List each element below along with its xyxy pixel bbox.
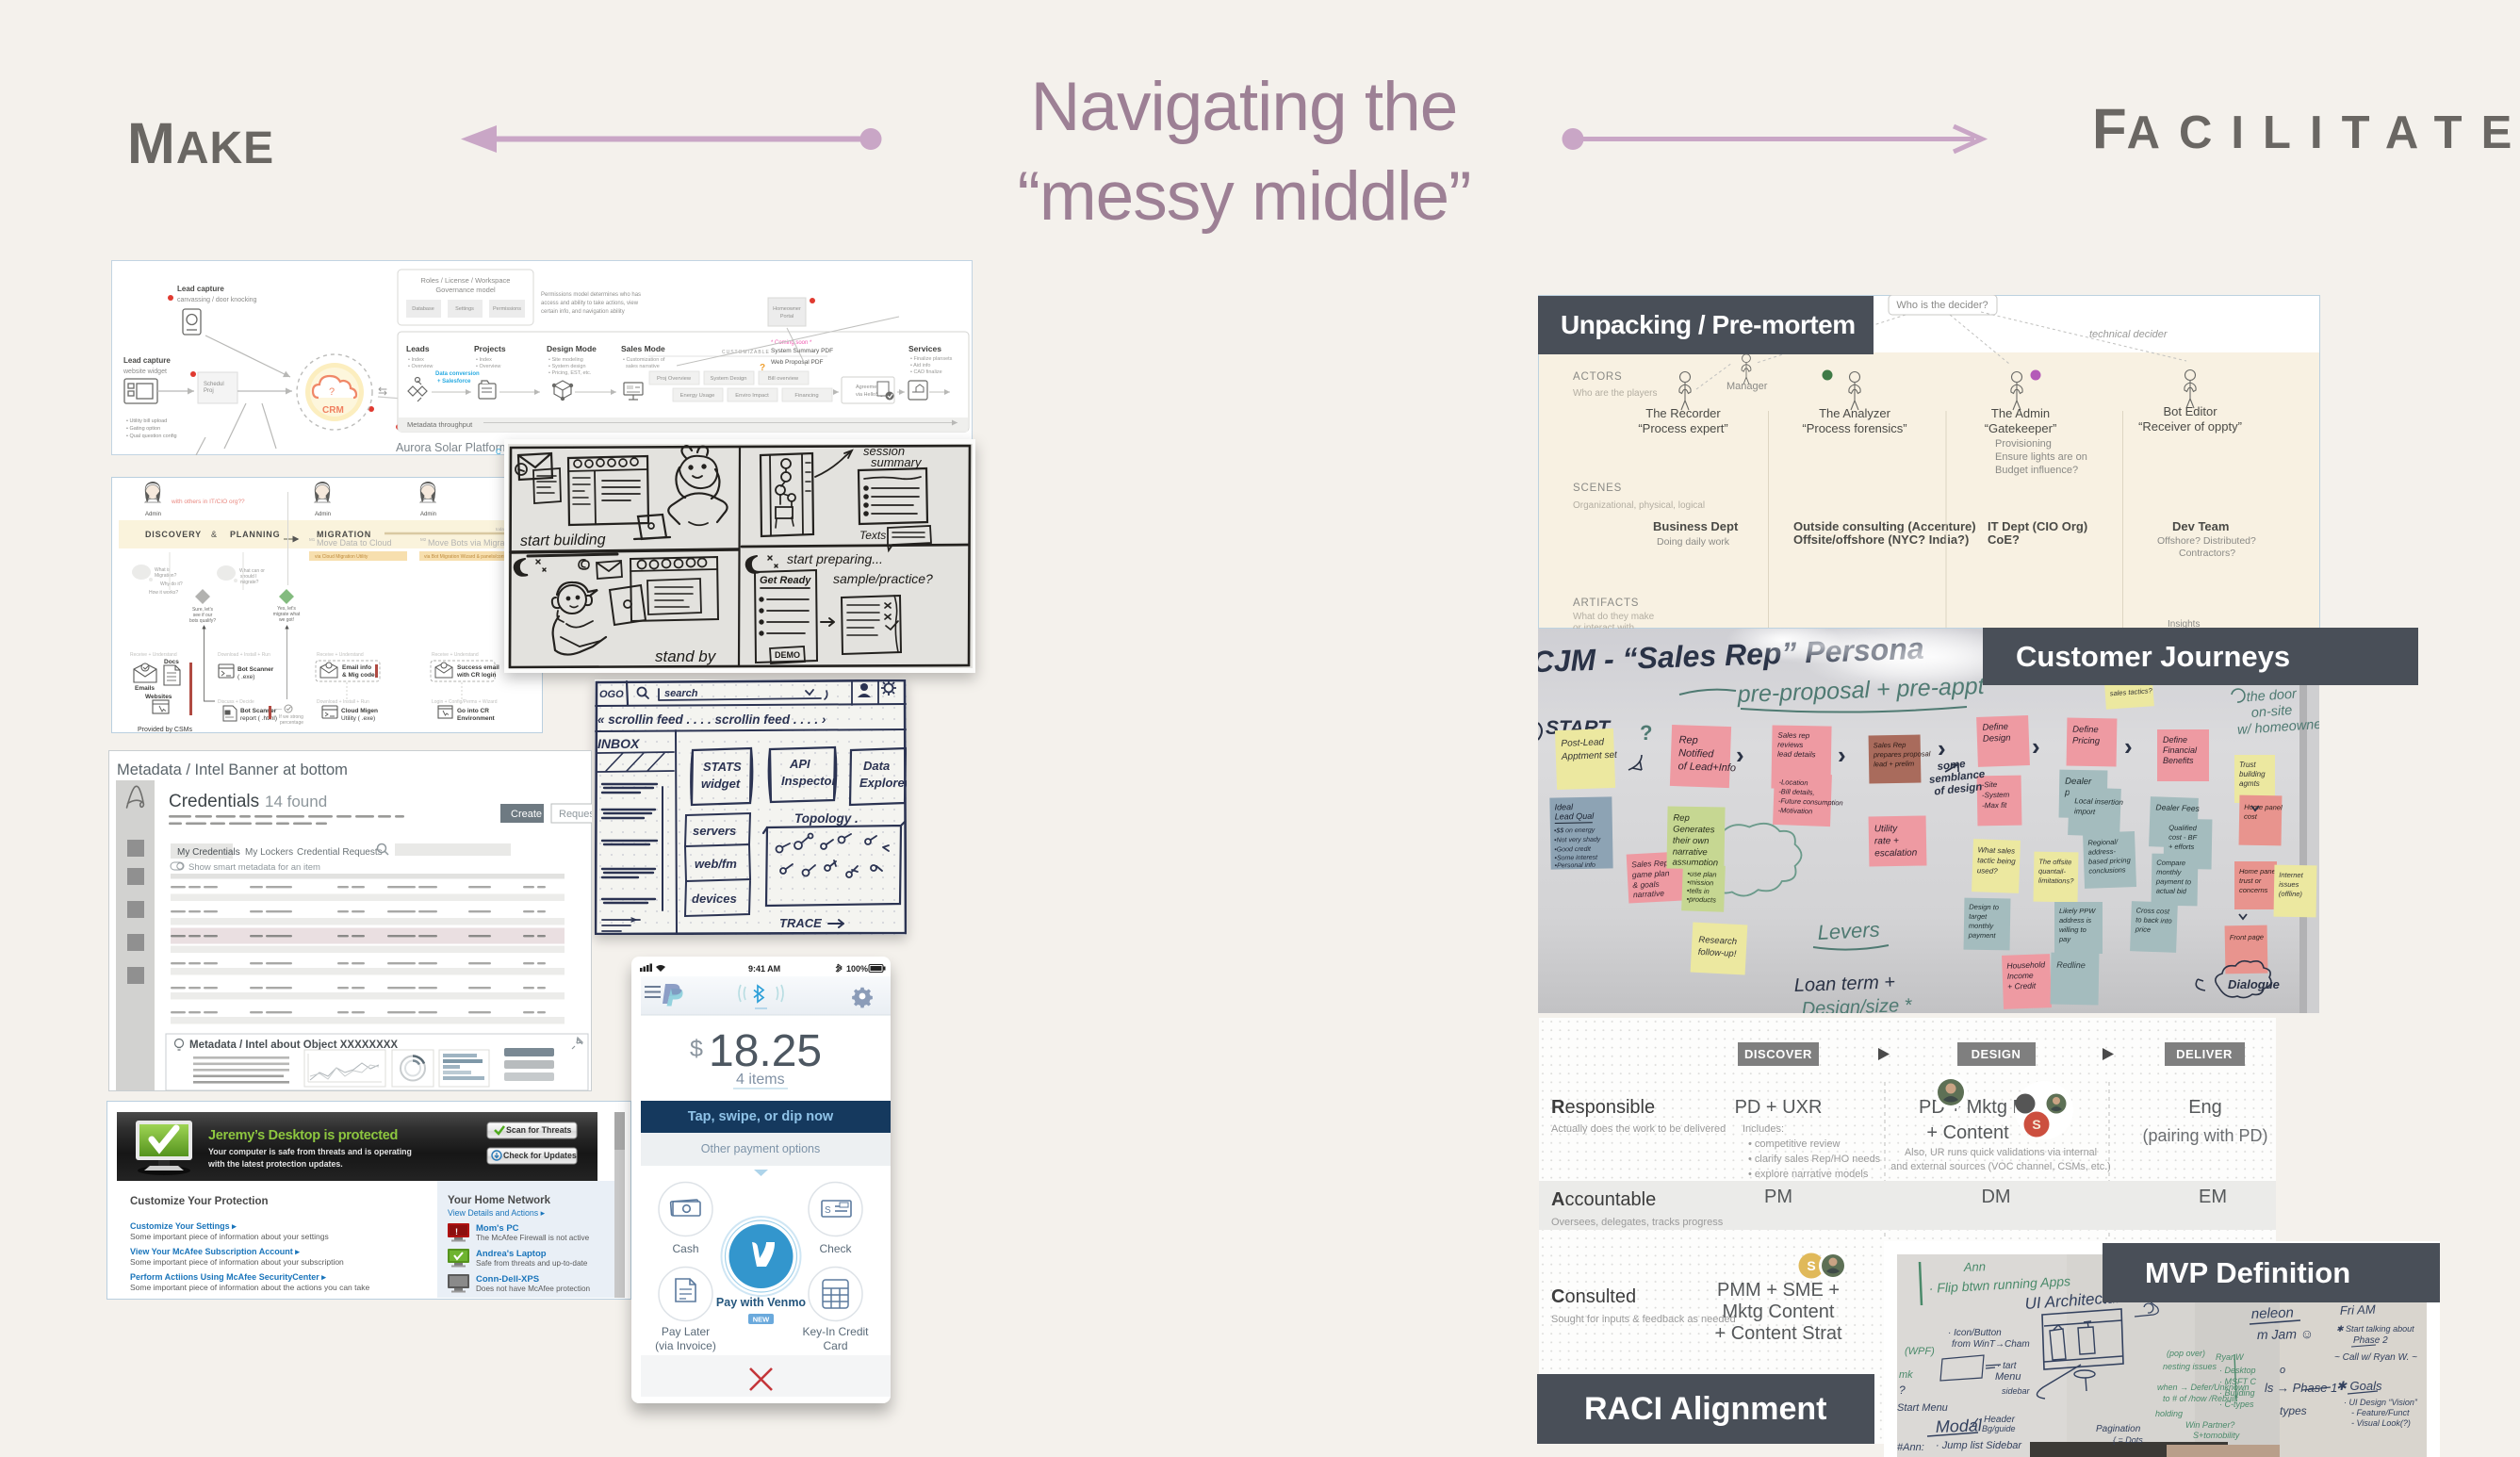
svg-text:sidebar: sidebar (2002, 1386, 2031, 1396)
svg-text:start building: start building (520, 532, 606, 549)
svg-text:stand by: stand by (655, 647, 717, 665)
svg-text:Design/size *: Design/size * (1801, 995, 1913, 1013)
svg-text:Your computer is safe from thr: Your computer is safe from threats and i… (208, 1147, 412, 1156)
svg-text:DEMO: DEMO (775, 650, 800, 660)
svg-text:Home panel: Home panel (2244, 803, 2283, 812)
svg-text:Pay Later: Pay Later (662, 1325, 710, 1338)
svg-text:-Motivation: -Motivation (1777, 806, 1812, 815)
svg-text:willing to: willing to (2059, 925, 2086, 934)
svg-text:C: C (496, 448, 501, 455)
svg-text:•Good credit: •Good credit (1554, 846, 1592, 854)
svg-text:Dev Team: Dev Team (2172, 519, 2229, 533)
svg-text:DM: DM (1981, 1187, 2010, 1207)
svg-text:Proj: Proj (204, 388, 214, 394)
svg-text:conclusions: conclusions (2088, 865, 2126, 875)
svg-text:Energy Usage: Energy Usage (680, 393, 715, 399)
svg-text:18.25: 18.25 (709, 1026, 822, 1076)
svg-text:Emails: Emails (135, 685, 155, 692)
svg-text:• Overview: • Overview (408, 364, 433, 369)
svg-text:S: S (825, 1205, 831, 1216)
svg-text:PD + Mktg D: PD + Mktg D (1919, 1097, 2026, 1118)
svg-text:DISCOVER: DISCOVER (1744, 1047, 1812, 1061)
svg-text:INBOX: INBOX (597, 736, 641, 751)
svg-text:actual bid: actual bid (2156, 887, 2187, 896)
svg-text:tactic being: tactic being (1977, 856, 2016, 865)
svg-text:narrative: narrative (1633, 889, 1665, 900)
svg-text:PMM + SME +: PMM + SME + (1717, 1280, 1840, 1301)
svg-text:Mktg Content: Mktg Content (1723, 1301, 1835, 1322)
svg-text:?: ? (1640, 721, 1652, 745)
svg-text:Receive + Understand: Receive + Understand (317, 652, 364, 658)
svg-text:-Site: -Site (1982, 780, 1998, 789)
svg-text:Inspector: Inspector (781, 774, 837, 788)
svg-text:(pop over): (pop over) (2167, 1349, 2205, 1358)
svg-text:Your Home Network: Your Home Network (448, 1195, 551, 1206)
svg-text:Offsite/offshore (NYC? India?): Offsite/offshore (NYC? India?) (1793, 532, 1969, 547)
svg-text:- Visual Look(?): - Visual Look(?) (2351, 1418, 2411, 1428)
svg-text:• Aid info: • Aid info (910, 363, 931, 368)
svg-text:Metadata throughput: Metadata throughput (407, 420, 473, 429)
svg-text:Post-Lead: Post-Lead (1561, 737, 1604, 749)
svg-text:m Jam ☺: m Jam ☺ (2257, 1326, 2314, 1342)
svg-text:Bot Editor: Bot Editor (2163, 404, 2217, 418)
svg-text:Download + Install + Run: Download + Install + Run (317, 699, 369, 705)
svg-text:Consulted: Consulted (1551, 1286, 1636, 1307)
svg-text:View Details and Actions ▸: View Details and Actions ▸ (448, 1208, 546, 1218)
svg-text:Homeowner: Homeowner (773, 306, 801, 312)
svg-text:+ Credit: + Credit (2007, 981, 2037, 991)
svg-text:• Index: • Index (408, 357, 424, 363)
svg-text:follow-up!: follow-up! (1697, 947, 1737, 959)
svg-text:#Ann:: #Ann: (1897, 1442, 1924, 1453)
svg-text:Docs: Docs (164, 659, 179, 665)
svg-text:with the latest protection upd: with the latest protection updates. (207, 1159, 343, 1169)
svg-text:• Overview: • Overview (476, 364, 500, 369)
svg-text:address-: address- (2088, 847, 2117, 857)
svg-text:Income: Income (2007, 971, 2034, 981)
svg-text:•Not very shady: •Not very shady (1554, 837, 1601, 844)
svg-text:Discuss + Decide: Discuss + Decide (218, 699, 254, 705)
svg-text:Utility: Utility (1874, 824, 1899, 834)
svg-text:« scrollin feed . . . . scrol: « scrollin feed . . . . scrollin feed . … (597, 712, 826, 727)
svg-text:Environment: Environment (457, 715, 496, 722)
svg-text:· Building: · Building (2219, 1388, 2255, 1398)
svg-text:· MSFT C: · MSFT C (2219, 1377, 2256, 1386)
svg-text:Explorer: Explorer (859, 776, 907, 790)
svg-text:address is: address is (2059, 916, 2091, 925)
svg-text:narrative: narrative (1673, 847, 1708, 859)
svg-text:Rep: Rep (1678, 734, 1698, 746)
svg-text:CRM: CRM (322, 405, 344, 416)
svg-text:Pricing: Pricing (2072, 736, 2101, 747)
svg-text:Admin: Admin (420, 512, 436, 517)
svg-text:Actually does the work to be d: Actually does the work to be delivered (1551, 1123, 1726, 1135)
svg-text:Some important piece of inform: Some important piece of information abou… (130, 1232, 329, 1241)
svg-text:STATS: STATS (703, 760, 742, 774)
svg-text:Sales rep: Sales rep (1777, 731, 1809, 741)
svg-text:+ efforts: + efforts (2168, 843, 2195, 851)
svg-text:Create: Create (511, 809, 542, 820)
svg-text:Data conversion: Data conversion (435, 371, 480, 377)
svg-text:Mom's PC: Mom's PC (476, 1223, 519, 1234)
svg-text:Permissions: Permissions (493, 306, 521, 312)
svg-text:Offshore? Distributed?: Offshore? Distributed? (2157, 535, 2256, 547)
svg-text:Research: Research (1698, 935, 1737, 947)
svg-text:bots qualify?: bots qualify? (189, 618, 216, 624)
svg-text:Outside consulting (Accenture): Outside consulting (Accenture) (1793, 519, 1976, 533)
svg-text:Define: Define (2163, 735, 2187, 745)
svg-text:Apptment set: Apptment set (1561, 750, 1618, 762)
svg-text:OGO: OGO (599, 689, 624, 700)
svg-text:Organizational, physical, logi: Organizational, physical, logical (1573, 500, 1705, 511)
svg-text:website widget: website widget (123, 368, 167, 375)
svg-text:Pay with Venmo: Pay with Venmo (716, 1296, 807, 1309)
svg-text:nesting issues: nesting issues (2163, 1362, 2217, 1371)
svg-text:Design: Design (1983, 733, 2011, 745)
svg-text:!: ! (455, 1227, 458, 1236)
svg-text:›: › (2032, 732, 2040, 761)
svg-text:Eng: Eng (2188, 1097, 2222, 1118)
svg-text:lead + prelim: lead + prelim (1874, 760, 1914, 769)
svg-text:Admin: Admin (145, 512, 161, 517)
svg-text:•Personal info: •Personal info (1555, 862, 1596, 870)
svg-text:• Utility bill upload: • Utility bill upload (126, 418, 167, 424)
svg-text:CoE?: CoE? (1988, 532, 2020, 547)
svg-text:building: building (2239, 770, 2266, 778)
svg-text:Define: Define (2072, 725, 2099, 735)
svg-text:sales narrative: sales narrative (626, 364, 660, 369)
svg-text:limitations?: limitations? (2038, 876, 2074, 886)
svg-text:Move Data to Cloud: Move Data to Cloud (317, 538, 392, 548)
svg-text:quantail-: quantail- (2038, 867, 2066, 876)
svg-text:Bot Scanner: Bot Scanner (237, 666, 274, 673)
svg-text:Who are the players: Who are the players (1573, 388, 1658, 399)
svg-text:What do they make: What do they make (1573, 612, 1655, 622)
svg-text:Go into CR: Go into CR (457, 708, 489, 714)
svg-text:Conn-Dell-XPS: Conn-Dell-XPS (476, 1274, 539, 1285)
svg-text:Dealer: Dealer (2065, 777, 2092, 788)
svg-text:14 found: 14 found (265, 793, 327, 810)
svg-text:Generates: Generates (1673, 825, 1715, 836)
svg-text:RyanW: RyanW (2216, 1352, 2245, 1362)
svg-text:• competitive review: • competitive review (1748, 1138, 1840, 1150)
svg-text:Provided by CSMs: Provided by CSMs (138, 727, 192, 733)
svg-text:API: API (789, 757, 810, 771)
svg-text:Benefits: Benefits (2163, 756, 2194, 765)
svg-text:Data: Data (863, 759, 890, 773)
svg-text:$: $ (690, 1036, 703, 1062)
svg-text:DELIVER: DELIVER (2176, 1047, 2233, 1061)
svg-text:Sales Rep: Sales Rep (1874, 741, 1906, 750)
svg-text:+ Content: + Content (1926, 1122, 2009, 1143)
svg-text:target: target (1969, 912, 1988, 921)
svg-text:S: S (1807, 1258, 1815, 1273)
svg-text:and external sources (VOC chan: and external sources (VOC channel, CSMs,… (1890, 1161, 2110, 1172)
svg-text:Contractors?: Contractors? (2179, 548, 2235, 559)
svg-text:+ Salesforce: + Salesforce (437, 379, 471, 385)
svg-text:o: o (2280, 1365, 2285, 1376)
svg-text:summary: summary (871, 455, 923, 469)
svg-text:Web Proposal PDF: Web Proposal PDF (771, 359, 824, 366)
svg-text:Phase 2: Phase 2 (2353, 1335, 2388, 1346)
svg-text:What sales: What sales (1977, 845, 2015, 855)
svg-text:devices: devices (692, 892, 737, 906)
svg-text:Ideal: Ideal (1554, 802, 1574, 811)
svg-text:Cash: Cash (672, 1242, 698, 1255)
svg-text:servers: servers (693, 824, 736, 838)
svg-text:•products: •products (1686, 894, 1716, 904)
svg-text:Aurora Solar Platform: Aurora Solar Platform (396, 441, 509, 454)
svg-text:Compare: Compare (2156, 859, 2185, 868)
svg-text:Cross cost: Cross cost (2135, 906, 2170, 915)
svg-text:Safe from threats and up-to-da: Safe from threats and up-to-date (476, 1259, 588, 1268)
svg-text:Dealer Fees: Dealer Fees (2155, 802, 2200, 813)
svg-text:My Credentials: My Credentials (177, 847, 240, 858)
svg-text:Bill overview: Bill overview (768, 376, 799, 382)
svg-text:—: — (276, 707, 282, 712)
svg-text:›: › (1938, 734, 1946, 762)
svg-text:types: types (2280, 1404, 2307, 1417)
svg-text:Receive + Understand: Receive + Understand (130, 652, 177, 658)
svg-text:Sales Rep: Sales Rep (1631, 858, 1669, 869)
svg-text:-System: -System (1982, 791, 2010, 800)
svg-text:TRACE: TRACE (779, 916, 822, 930)
svg-text:Pagination: Pagination (2096, 1424, 2141, 1434)
svg-text:neleon: neleon (2251, 1304, 2295, 1322)
svg-text:The Analyzer: The Analyzer (1819, 406, 1891, 420)
svg-text:Credential Requests: Credential Requests (297, 847, 383, 858)
svg-text:Success email: Success email (457, 664, 499, 671)
svg-text:✱ Start talking about: ✱ Start talking about (2336, 1324, 2414, 1334)
svg-text:· Icon/Button: · Icon/Button (1948, 1328, 2002, 1338)
svg-text:Front page: Front page (2230, 933, 2264, 942)
svg-text:{ = Dots: { = Dots (2113, 1435, 2143, 1445)
svg-text:Texts: Texts (859, 529, 886, 542)
svg-text:Email info: Email info (342, 664, 371, 671)
svg-text:Tap, swipe, or dip now: Tap, swipe, or dip now (688, 1109, 834, 1124)
svg-text:issues: issues (2279, 880, 2299, 889)
svg-text:Enviro Impact: Enviro Impact (735, 393, 769, 399)
svg-text:• Qual question config: • Qual question config (126, 434, 177, 439)
svg-text:Andrea's Laptop: Andrea's Laptop (476, 1249, 547, 1259)
svg-text:Utility ( .exe): Utility ( .exe) (341, 715, 375, 722)
svg-text:Likely PPW: Likely PPW (2059, 907, 2096, 915)
svg-text:The McAfee Firewall is not act: The McAfee Firewall is not active (476, 1234, 590, 1242)
svg-text:concerns: concerns (2239, 886, 2268, 894)
svg-text:escalation: escalation (1874, 848, 1918, 859)
svg-text:Customize Your Settings ▸: Customize Your Settings ▸ (130, 1221, 237, 1231)
svg-text:“Process expert”: “Process expert” (1638, 421, 1727, 435)
svg-text:with others in IT/CIO org??: with others in IT/CIO org?? (171, 499, 245, 505)
svg-text:“Gatekeeper”: “Gatekeeper” (1985, 421, 2057, 435)
svg-text:?: ? (1899, 1383, 1906, 1397)
svg-text:Leads: Leads (406, 344, 430, 353)
svg-text:Card: Card (823, 1339, 847, 1352)
svg-text:• Index: • Index (476, 357, 492, 363)
svg-text:Scan for Threats: Scan for Threats (506, 1125, 572, 1135)
svg-text:Design to: Design to (1969, 903, 1999, 912)
svg-text:100%: 100% (846, 964, 868, 974)
svg-text:price: price (2135, 925, 2152, 934)
svg-text:Bg/guide: Bg/guide (1982, 1424, 2016, 1433)
svg-text:Define: Define (1982, 722, 2008, 733)
svg-text:Schedul: Schedul (204, 382, 224, 387)
svg-text:-Max fit: -Max fit (1982, 801, 2007, 810)
svg-text:payment to: payment to (2155, 877, 2191, 887)
svg-text:My Lockers: My Lockers (245, 847, 293, 858)
svg-text:Admin: Admin (315, 512, 331, 517)
svg-text:• Customization of: • Customization of (623, 357, 665, 363)
svg-text:DESIGN: DESIGN (1972, 1047, 2021, 1061)
svg-text:⇆: ⇆ (378, 385, 387, 398)
svg-text:agmts: agmts (2239, 779, 2260, 788)
svg-text:Portal: Portal (780, 314, 794, 319)
svg-text:lead details: lead details (1777, 750, 1816, 760)
svg-text:import: import (2074, 807, 2096, 816)
svg-text:· Jump list Sidebar: · Jump list Sidebar (1936, 1440, 2022, 1451)
svg-text:used?: used? (1977, 866, 1999, 876)
svg-text:we got!: we got! (279, 617, 294, 623)
svg-text:Levers: Levers (1817, 918, 1880, 944)
svg-text:PD + UXR: PD + UXR (1735, 1097, 1823, 1118)
svg-text:trust or: trust or (2239, 876, 2262, 885)
svg-text:Proj Overview: Proj Overview (657, 376, 692, 382)
svg-text:( .exe): ( .exe) (237, 674, 254, 680)
svg-text:M2: M2 (420, 537, 427, 542)
svg-text:rate +: rate + (1874, 836, 1899, 846)
svg-text:Business Dept: Business Dept (1653, 519, 1739, 533)
svg-text:Menu: Menu (1995, 1371, 2021, 1383)
svg-text:The Admin: The Admin (1991, 406, 2050, 420)
svg-text:Ann: Ann (1963, 1259, 1987, 1274)
svg-text:Financial: Financial (2163, 745, 2198, 755)
svg-text:Manager: Manager (1726, 381, 1768, 392)
svg-text:Topology .: Topology . (794, 811, 859, 826)
svg-text:Lead capture: Lead capture (177, 285, 224, 293)
svg-text:cost: cost (2244, 812, 2258, 821)
svg-text:Financing: Financing (794, 393, 818, 399)
svg-text:start preparing...: start preparing... (787, 551, 883, 566)
svg-text:Cloud Migen: Cloud Migen (341, 708, 378, 714)
svg-text:mk: mk (1899, 1369, 1913, 1381)
svg-text:?: ? (760, 363, 765, 373)
svg-text:Notified: Notified (1678, 747, 1715, 760)
svg-text:game plan: game plan (1632, 868, 1670, 879)
svg-text:Check for Updates: Check for Updates (503, 1151, 577, 1160)
svg-text:percentage: percentage (280, 720, 303, 726)
svg-text:Services: Services (908, 344, 941, 353)
svg-text:via Cloud Migration Utility: via Cloud Migration Utility (315, 554, 368, 560)
svg-text:S: S (2032, 1117, 2040, 1132)
svg-text:technical decider: technical decider (2089, 329, 2168, 340)
svg-text:Who is the decider?: Who is the decider? (1896, 300, 1988, 311)
svg-text:Lead capture: Lead capture (123, 356, 171, 365)
svg-text:Perform Actiions Using McAfee: Perform Actiions Using McAfee SecurityCe… (130, 1272, 326, 1282)
svg-text:Oversees, delegates, tracks pr: Oversees, delegates, tracks progress (1551, 1217, 1724, 1228)
svg-text:Key-In Credit: Key-In Credit (802, 1325, 869, 1338)
svg-text:Customize Your Protection: Customize Your Protection (130, 1196, 269, 1207)
svg-text:via Bot Migration Wizard & pan: via Bot Migration Wizard & panels/config (424, 554, 509, 560)
svg-text:• Gating option: • Gating option (126, 426, 160, 432)
svg-text:9:41 AM: 9:41 AM (748, 964, 780, 974)
svg-text:with CR login: with CR login (456, 672, 497, 679)
svg-text:›: › (1838, 741, 1846, 769)
svg-text:Roles / License / Workspace: Roles / License / Workspace (421, 276, 511, 285)
svg-text:• Finalize plansets: • Finalize plansets (910, 356, 953, 362)
svg-text:· C-types: · C-types (2219, 1400, 2254, 1409)
svg-text:Projects: Projects (474, 344, 506, 353)
svg-text:System Summary PDF: System Summary PDF (771, 348, 833, 354)
svg-text:+ Content Strat: + Content Strat (1714, 1323, 1842, 1344)
svg-text:-Location: -Location (1778, 778, 1808, 787)
svg-text:Metadata / Intel about Object: Metadata / Intel about Object XXXXXXXX (189, 1040, 398, 1051)
svg-text:Accountable: Accountable (1551, 1189, 1656, 1210)
svg-text:Metadata / Intel Banner at bot: Metadata / Intel Banner at bottom (117, 761, 348, 778)
svg-text:Budget influence?: Budget influence? (1995, 465, 2078, 476)
svg-text:S+tomobility: S+tomobility (2193, 1431, 2240, 1440)
svg-text:• CAD finalize: • CAD finalize (910, 369, 942, 375)
svg-text:NEW: NEW (753, 1316, 770, 1324)
svg-text:• explore narrative models: • explore narrative models (1748, 1169, 1869, 1180)
svg-text:Get Ready: Get Ready (760, 575, 811, 586)
svg-text:DISCOVERY: DISCOVERY (145, 530, 202, 539)
svg-text:based pricing: based pricing (2088, 856, 2132, 866)
svg-text:search: search (664, 688, 698, 699)
svg-text:Sought for inputs & feedback a: Sought for inputs & feedback as needed (1551, 1314, 1736, 1325)
svg-text:Provisioning: Provisioning (1995, 438, 2052, 450)
svg-text:• clarify sales Rep/HO needs: • clarify sales Rep/HO needs (1748, 1154, 1881, 1165)
svg-text:their own: their own (1673, 836, 1710, 847)
svg-text:monthly: monthly (2156, 868, 2183, 876)
svg-text:Credentials: Credentials (169, 792, 259, 811)
svg-text:SCENES: SCENES (1573, 483, 1622, 494)
svg-text:Qualified: Qualified (2168, 824, 2198, 833)
svg-text:Loan term +: Loan term + (1793, 972, 1895, 996)
svg-text:reviews: reviews (1777, 741, 1803, 749)
svg-text:Design Mode: Design Mode (547, 344, 597, 353)
svg-text:• Site modeling: • Site modeling (548, 357, 583, 363)
svg-text:View Your McAfee Subscription: View Your McAfee Subscription Account ▸ (130, 1247, 300, 1256)
svg-text:Also, UR runs quick validation: Also, UR runs quick validations via inte… (1905, 1147, 2097, 1158)
svg-text:- Feature/Funct: - Feature/Funct (2351, 1408, 2410, 1417)
svg-text:Redline: Redline (2056, 960, 2086, 971)
svg-text:PM: PM (1764, 1187, 1792, 1207)
svg-text:monthly: monthly (1969, 922, 1995, 930)
svg-text:sample/practice?: sample/practice? (833, 571, 933, 586)
svg-text:Ensure lights are on: Ensure lights are on (1995, 451, 2087, 463)
svg-text:Permissions model determines w: Permissions model determines who has (541, 292, 641, 298)
svg-text:PLANNING: PLANNING (230, 530, 280, 539)
svg-text:Rep: Rep (1673, 813, 1690, 824)
svg-text:•$$ on energy: •$$ on energy (1554, 827, 1595, 835)
svg-text:(via Invoice): (via Invoice) (655, 1339, 716, 1352)
svg-text:Dialogue: Dialogue (2228, 977, 2280, 991)
svg-text:Login + Config/Perms + Wizard: Login + Config/Perms + Wizard (432, 699, 498, 705)
svg-text:-Bill details,: -Bill details, (1778, 787, 1815, 796)
svg-text:Local insertion: Local insertion (2074, 796, 2123, 807)
svg-text:Regional/: Regional/ (2087, 838, 2119, 847)
svg-text:System Design: System Design (711, 376, 747, 382)
svg-text:Doing daily work: Doing daily work (1657, 536, 1730, 548)
svg-text:~ Call w/ Ryan W. ~: ~ Call w/ Ryan W. ~ (2334, 1352, 2417, 1363)
svg-text:· UI Design “Vision”: · UI Design “Vision” (2344, 1398, 2418, 1407)
svg-text:on-site: on-site (2250, 703, 2293, 721)
svg-text:“Receiver of oppty”: “Receiver of oppty” (2138, 419, 2242, 434)
svg-text:The Recorder: The Recorder (1645, 406, 1721, 420)
svg-text:Responsible: Responsible (1551, 1097, 1655, 1118)
svg-text:of Lead+Info: of Lead+Info (1677, 761, 1736, 774)
svg-text:Lead Qual: Lead Qual (1555, 811, 1595, 822)
